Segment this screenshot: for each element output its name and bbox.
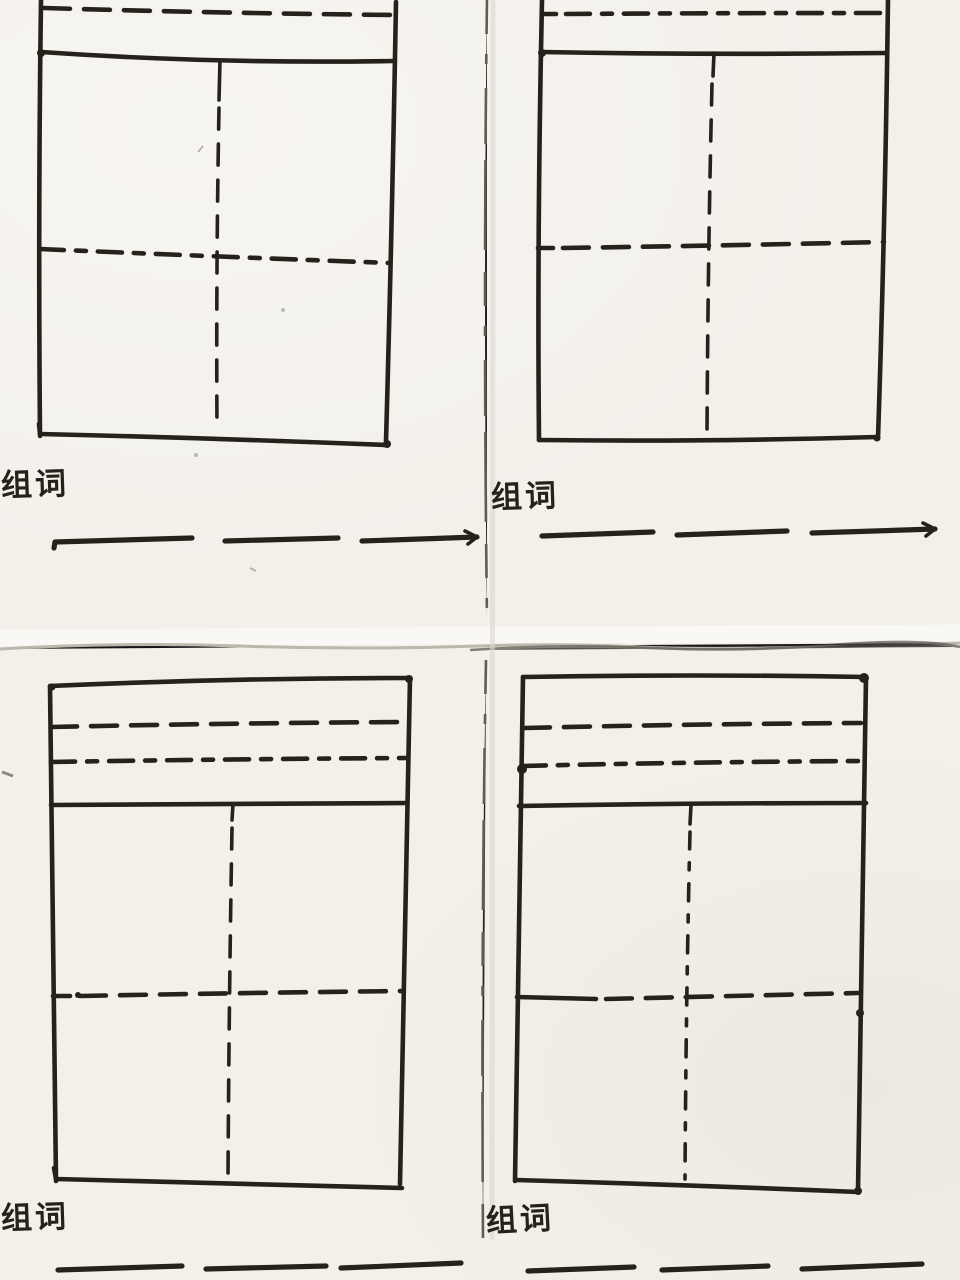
word-writing-lines: [528, 1264, 922, 1271]
ink-dot: [405, 675, 413, 683]
paper-speck: [194, 453, 198, 457]
center-vertical-tick: [219, 60, 220, 100]
ink-dot: [856, 1009, 864, 1017]
center-vertical-guide: [228, 828, 232, 1178]
ink-dot: [37, 49, 45, 57]
writing-line-2: [677, 531, 787, 535]
pencil-smudge: [2, 772, 13, 776]
card-bottom-border: [539, 437, 877, 441]
word-writing-lines: [542, 523, 935, 536]
zuci-label-top-right: 组词: [490, 481, 559, 514]
card-left-border: [515, 677, 523, 1181]
card-right-border: [386, 2, 396, 441]
writing-line-2: [225, 538, 338, 541]
card-right-border: [878, 0, 888, 438]
card-top-border: [523, 676, 866, 678]
writing-line-1: [58, 1266, 182, 1270]
pinyin-dashed-line: [566, 13, 886, 14]
writing-line-1: [54, 538, 192, 548]
writing-line-2: [206, 1266, 326, 1269]
vertical-fold-line: [482, 0, 487, 1238]
card-left-border: [538, 0, 542, 440]
ink-dot: [854, 1187, 862, 1195]
ink-dot: [517, 764, 527, 774]
center-vertical-tick: [713, 53, 714, 76]
pinyin-dashed-line-1: [51, 722, 408, 727]
worksheet-drawing: [0, 0, 960, 1280]
zuci-label-top-left: 组词: [0, 469, 69, 502]
pinyin-baseline: [51, 803, 407, 805]
pinyin-dashed-line-2: [51, 758, 407, 762]
card-bottom-border: [39, 424, 387, 445]
vertical-fold-shadow: [492, 0, 493, 1240]
practice-card-bottom-left: [49, 675, 462, 1270]
writing-line-3: [362, 537, 477, 541]
practice-card-top-right: [538, 0, 935, 536]
pinyin-baseline: [41, 52, 393, 62]
ink-dot: [383, 440, 391, 448]
center-vertical-guide: [707, 84, 712, 433]
center-vertical-guide: [217, 108, 219, 430]
zuci-label-bottom-right: 组词: [485, 1203, 555, 1238]
word-writing-lines: [54, 531, 477, 548]
writing-line-3: [341, 1263, 461, 1268]
card-right-border: [858, 677, 866, 1191]
page-creases: [0, 0, 960, 1240]
worksheet-photo: 组词 组词 组词 组词: [0, 0, 960, 1280]
center-horizontal-solid-start: [517, 997, 596, 999]
ink-dot: [75, 992, 81, 998]
card-bottom-border: [516, 1180, 858, 1192]
center-horizontal-guide: [606, 993, 858, 999]
practice-card-top-left: [37, 0, 477, 548]
pinyin-dashed-line-2: [522, 761, 862, 766]
paper-speck: [198, 146, 256, 571]
practice-card-bottom-right: [515, 673, 922, 1271]
writing-line-2: [662, 1266, 768, 1270]
center-horizontal-guide: [40, 249, 390, 263]
card-left-border: [39, 0, 41, 436]
ink-dot: [874, 435, 881, 442]
center-vertical-guide: [685, 832, 690, 1179]
word-writing-lines: [58, 1263, 461, 1270]
card-right-border: [400, 678, 410, 1184]
writing-line-1: [528, 1267, 634, 1271]
writing-line-3: [812, 529, 935, 533]
ink-dot: [49, 684, 56, 691]
pinyin-dashed-line-1: [524, 723, 861, 728]
writing-line-1: [542, 532, 653, 536]
center-vertical-tick: [232, 804, 233, 820]
pinyin-dashed-line: [44, 8, 393, 15]
center-vertical-tick: [690, 805, 691, 824]
ink-dot: [538, 49, 546, 57]
ink-dot: [859, 673, 869, 683]
center-horizontal-guide: [563, 242, 884, 248]
center-horizontal-guide: [80, 991, 402, 996]
paper-speck: [281, 308, 285, 312]
writing-line-3: [802, 1264, 922, 1269]
zuci-label-bottom-left: 组词: [0, 1202, 69, 1235]
card-top-border: [50, 678, 410, 686]
